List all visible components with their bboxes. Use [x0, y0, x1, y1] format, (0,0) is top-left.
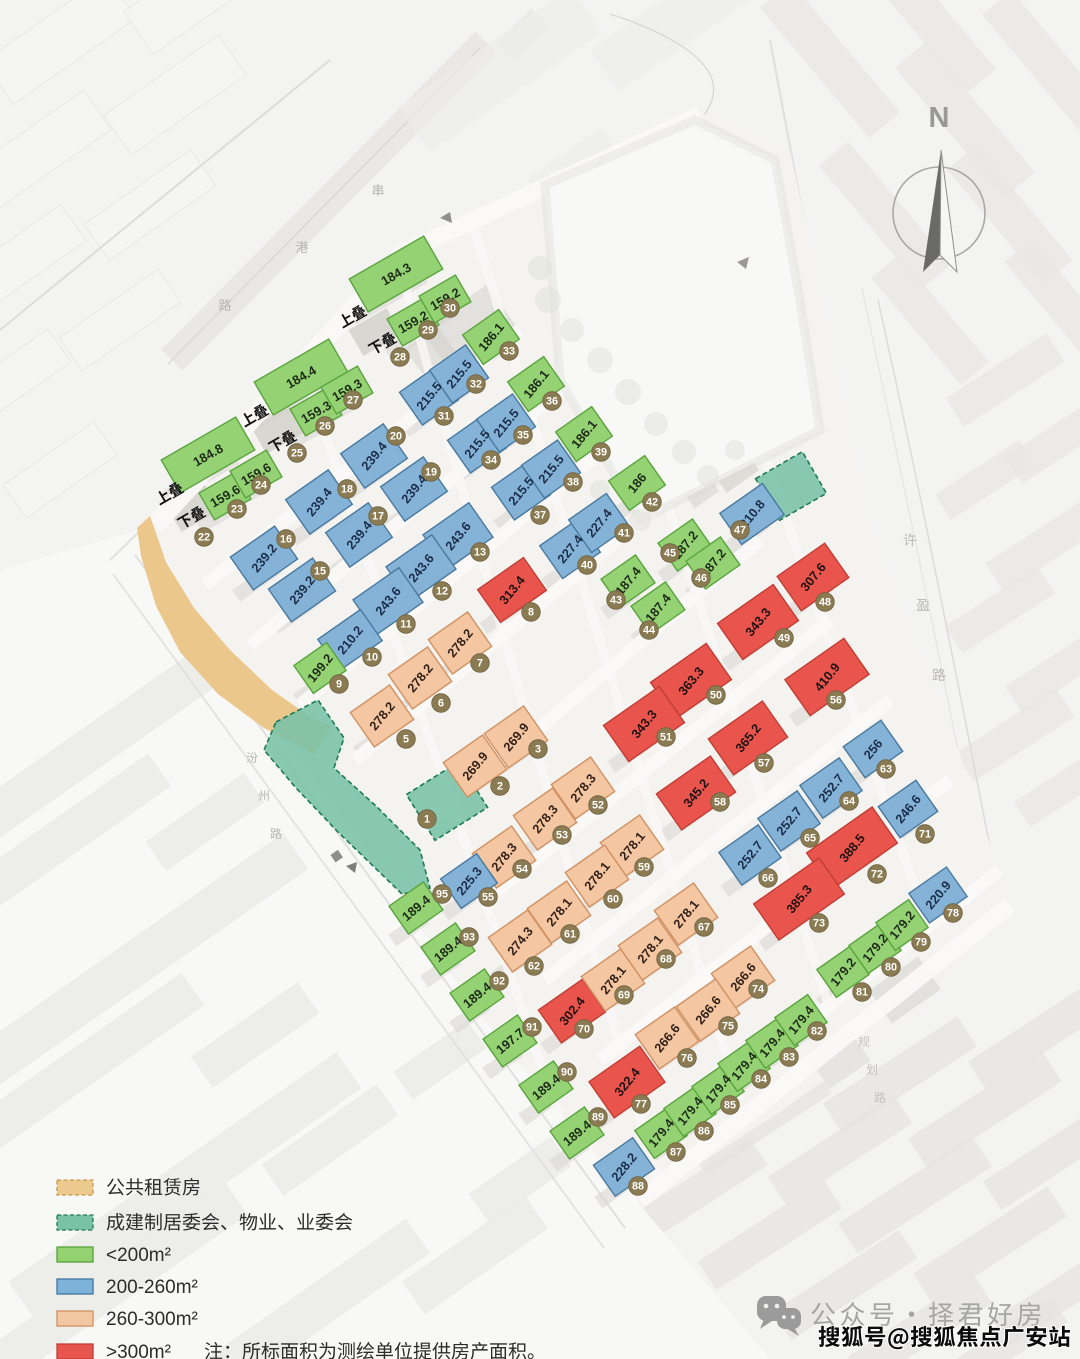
svg-text:1: 1	[424, 814, 430, 826]
svg-text:3: 3	[535, 744, 541, 756]
svg-text:11: 11	[400, 619, 411, 631]
svg-text:55: 55	[482, 892, 494, 904]
svg-text:26: 26	[319, 421, 331, 433]
svg-text:28: 28	[394, 352, 406, 364]
svg-text:54: 54	[516, 864, 528, 876]
svg-text:36: 36	[546, 396, 558, 408]
svg-text:23: 23	[231, 504, 243, 516]
svg-text:71: 71	[919, 829, 931, 841]
svg-text:80: 80	[885, 962, 897, 974]
svg-text:56: 56	[830, 695, 842, 707]
svg-text:52: 52	[592, 800, 604, 812]
svg-text:68: 68	[660, 954, 672, 966]
svg-text:88: 88	[632, 1181, 644, 1193]
svg-text:74: 74	[752, 984, 764, 996]
svg-text:47: 47	[734, 525, 746, 537]
svg-text:5: 5	[403, 734, 409, 746]
svg-text:65: 65	[804, 833, 816, 845]
svg-text:72: 72	[871, 869, 883, 881]
svg-text:39: 39	[595, 447, 607, 459]
svg-text:20: 20	[390, 431, 402, 443]
svg-text:48: 48	[819, 597, 831, 609]
svg-text:86: 86	[698, 1126, 710, 1138]
svg-text:64: 64	[843, 796, 855, 808]
svg-text:25: 25	[291, 448, 303, 460]
svg-text:15: 15	[314, 566, 326, 578]
svg-text:89: 89	[592, 1112, 604, 1124]
svg-text:17: 17	[372, 511, 384, 523]
svg-text:24: 24	[255, 480, 267, 492]
svg-text:50: 50	[710, 690, 722, 702]
svg-text:77: 77	[635, 1099, 647, 1111]
svg-text:57: 57	[758, 758, 770, 770]
svg-text:59: 59	[638, 862, 650, 874]
svg-text:N: N	[929, 102, 950, 134]
svg-text:12: 12	[436, 586, 448, 598]
svg-text:87: 87	[670, 1147, 682, 1159]
svg-text:27: 27	[347, 395, 359, 407]
svg-text:<200m²: <200m²	[106, 1245, 171, 1266]
svg-text:49: 49	[778, 633, 790, 645]
svg-text:41: 41	[618, 528, 630, 540]
svg-text:93: 93	[463, 932, 475, 944]
svg-text:6: 6	[438, 698, 444, 710]
svg-text:7: 7	[477, 658, 483, 670]
svg-text:81: 81	[856, 987, 868, 999]
svg-text:66: 66	[762, 873, 774, 885]
svg-text:2: 2	[497, 781, 503, 793]
svg-text:260-300m²: 260-300m²	[106, 1309, 198, 1330]
svg-text:84: 84	[755, 1074, 767, 1086]
svg-text:8: 8	[528, 607, 534, 619]
svg-text:40: 40	[581, 560, 593, 572]
svg-text:16: 16	[280, 534, 292, 546]
svg-text:200-260m²: 200-260m²	[106, 1277, 198, 1298]
svg-text:42: 42	[646, 497, 658, 509]
svg-text:85: 85	[724, 1100, 736, 1112]
svg-text:78: 78	[947, 908, 959, 920]
svg-text:67: 67	[698, 922, 710, 934]
svg-text:46: 46	[695, 573, 707, 585]
svg-text:22: 22	[198, 532, 210, 544]
svg-text:10: 10	[366, 652, 378, 664]
svg-text:79: 79	[915, 937, 927, 949]
svg-text:95: 95	[436, 889, 448, 901]
svg-text:63: 63	[880, 764, 892, 776]
svg-text:19: 19	[425, 467, 437, 479]
svg-text:76: 76	[681, 1053, 693, 1065]
svg-text:51: 51	[660, 732, 672, 744]
svg-text:61: 61	[564, 929, 576, 941]
svg-text:83: 83	[783, 1052, 795, 1064]
svg-text:91: 91	[526, 1022, 538, 1034]
svg-text:44: 44	[643, 625, 655, 637]
svg-text:43: 43	[610, 595, 622, 607]
svg-text:73: 73	[813, 918, 825, 930]
svg-text:69: 69	[618, 990, 630, 1002]
svg-text:35: 35	[517, 430, 529, 442]
svg-text:58: 58	[714, 797, 726, 809]
svg-text:34: 34	[485, 455, 497, 467]
svg-text:82: 82	[811, 1026, 823, 1038]
svg-text:9: 9	[336, 679, 342, 691]
svg-text:33: 33	[503, 346, 515, 358]
svg-text:60: 60	[607, 894, 619, 906]
svg-text:37: 37	[534, 510, 546, 522]
svg-text:30: 30	[444, 303, 456, 315]
svg-text:18: 18	[341, 484, 353, 496]
svg-text:45: 45	[664, 548, 676, 560]
svg-text:31: 31	[438, 411, 450, 423]
svg-text:>300m²: >300m²	[106, 1342, 171, 1359]
svg-text:38: 38	[567, 477, 579, 489]
svg-text:92: 92	[493, 976, 505, 988]
svg-text:29: 29	[422, 325, 434, 337]
svg-text:70: 70	[578, 1024, 590, 1036]
svg-text:90: 90	[561, 1067, 573, 1079]
svg-text:13: 13	[474, 547, 486, 559]
svg-text:62: 62	[528, 961, 540, 973]
svg-text:53: 53	[556, 830, 568, 842]
svg-text:75: 75	[722, 1021, 734, 1033]
svg-text:32: 32	[470, 379, 482, 391]
